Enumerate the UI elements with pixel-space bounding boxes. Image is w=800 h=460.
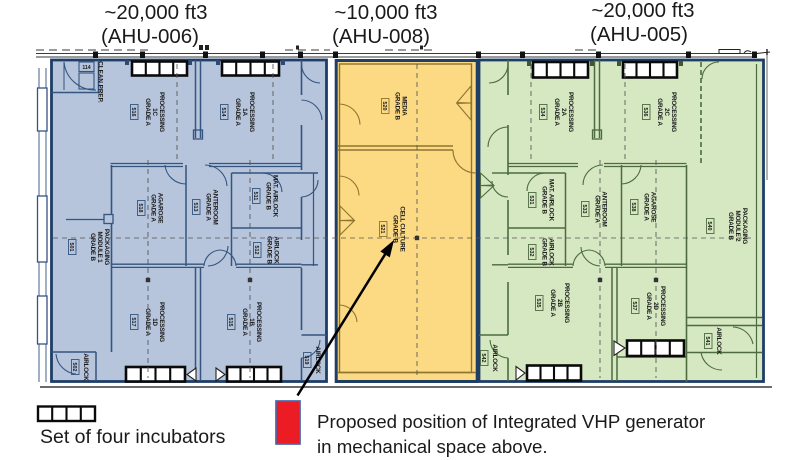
svg-text:535: 535 bbox=[535, 299, 541, 308]
svg-text:(AHU-006): (AHU-006) bbox=[101, 25, 199, 48]
svg-text:AIRLOCK: AIRLOCK bbox=[82, 353, 89, 381]
svg-text:514: 514 bbox=[220, 108, 226, 117]
svg-text:~20,000 ft3: ~20,000 ft3 bbox=[591, 0, 694, 22]
svg-text:PROCESSING: PROCESSING bbox=[659, 286, 666, 326]
svg-text:1A: 1A bbox=[241, 108, 248, 116]
svg-text:502: 502 bbox=[71, 363, 77, 372]
svg-text:AIRLOCK: AIRLOCK bbox=[491, 344, 498, 372]
svg-text:114: 114 bbox=[82, 65, 90, 71]
svg-text:(AHU-008): (AHU-008) bbox=[332, 25, 430, 48]
svg-text:516: 516 bbox=[130, 108, 136, 117]
svg-text:538: 538 bbox=[630, 203, 636, 212]
svg-text:512: 512 bbox=[253, 246, 259, 255]
svg-text:GRADE B: GRADE B bbox=[265, 182, 272, 210]
svg-text:PROCESSING: PROCESSING bbox=[248, 92, 255, 132]
svg-text:AGAROSE: AGAROSE bbox=[157, 193, 164, 223]
svg-text:AIRLOCK: AIRLOCK bbox=[273, 236, 280, 264]
svg-text:542: 542 bbox=[480, 354, 486, 363]
svg-text:2B: 2B bbox=[556, 299, 563, 307]
svg-text:AGAROSE: AGAROSE bbox=[650, 192, 657, 222]
svg-text:GRADE B: GRADE B bbox=[266, 236, 273, 264]
svg-text:AIRLOCK: AIRLOCK bbox=[548, 238, 555, 266]
svg-text:MAT. AIRLOCK: MAT. AIRLOCK bbox=[548, 179, 555, 222]
svg-text:GRADE A: GRADE A bbox=[643, 193, 650, 221]
svg-text:MODULE 1: MODULE 1 bbox=[96, 232, 103, 264]
svg-text:GRADE A: GRADE A bbox=[234, 98, 241, 126]
svg-text:GRADE A: GRADE A bbox=[549, 289, 556, 317]
svg-text:~10,000 ft3: ~10,000 ft3 bbox=[334, 1, 437, 24]
svg-text:GRADE B: GRADE B bbox=[541, 186, 548, 214]
svg-text:PACKAGING: PACKAGING bbox=[103, 229, 110, 266]
svg-text:ANTEROOM: ANTEROOM bbox=[601, 191, 608, 226]
svg-text:GRADE B: GRADE B bbox=[727, 212, 734, 240]
svg-text:ANTEROOM: ANTEROOM bbox=[212, 189, 219, 224]
svg-text:518: 518 bbox=[137, 204, 143, 213]
svg-text:2D: 2D bbox=[652, 302, 659, 310]
svg-text:MODULE 2: MODULE 2 bbox=[734, 211, 741, 243]
svg-text:532: 532 bbox=[528, 248, 534, 257]
svg-text:GRADE A: GRADE A bbox=[150, 194, 157, 222]
svg-text:(AHU-005): (AHU-005) bbox=[590, 23, 688, 46]
svg-text:GRADE A: GRADE A bbox=[645, 292, 652, 320]
svg-text:519: 519 bbox=[303, 356, 309, 365]
svg-text:PROCESSING: PROCESSING bbox=[255, 302, 262, 342]
svg-text:~20,000 ft3: ~20,000 ft3 bbox=[104, 1, 207, 24]
svg-text:GRADE B: GRADE B bbox=[89, 233, 96, 261]
svg-text:541: 541 bbox=[704, 337, 710, 346]
svg-text:1B: 1B bbox=[248, 318, 255, 326]
svg-text:537: 537 bbox=[631, 302, 637, 311]
svg-text:2A: 2A bbox=[560, 108, 567, 116]
svg-text:PACKAGING: PACKAGING bbox=[741, 208, 748, 245]
svg-text:PROCESSING: PROCESSING bbox=[567, 92, 574, 132]
svg-text:540: 540 bbox=[706, 222, 712, 231]
svg-text:PROCESSING: PROCESSING bbox=[158, 92, 165, 132]
svg-text:533: 533 bbox=[581, 205, 587, 214]
svg-text:GRADE A: GRADE A bbox=[241, 308, 248, 336]
svg-text:PROCESSING: PROCESSING bbox=[563, 283, 570, 323]
svg-text:GRADE A: GRADE A bbox=[553, 98, 560, 126]
svg-text:520: 520 bbox=[381, 102, 387, 111]
svg-text:GRADE B: GRADE B bbox=[541, 238, 548, 266]
svg-text:AIRLOCK: AIRLOCK bbox=[715, 327, 722, 355]
svg-text:GRADE A: GRADE A bbox=[656, 98, 663, 126]
svg-text:GRADE B: GRADE B bbox=[394, 92, 401, 120]
svg-text:MAT. AIRLOCK: MAT. AIRLOCK bbox=[272, 175, 279, 218]
svg-text:2C: 2C bbox=[663, 108, 670, 116]
svg-text:MEDIA: MEDIA bbox=[401, 96, 408, 116]
svg-text:PROCESSING: PROCESSING bbox=[158, 302, 165, 342]
svg-text:521: 521 bbox=[379, 225, 385, 234]
svg-text:501: 501 bbox=[68, 243, 74, 252]
svg-text:GRADE B: GRADE B bbox=[392, 215, 399, 243]
svg-text:536: 536 bbox=[642, 108, 648, 117]
svg-text:CELL CULTURE: CELL CULTURE bbox=[399, 206, 406, 251]
svg-text:Set of four incubators: Set of four incubators bbox=[40, 426, 226, 448]
svg-text:515: 515 bbox=[227, 318, 233, 327]
svg-text:531: 531 bbox=[528, 196, 534, 205]
svg-text:Proposed position of Integrate: Proposed position of Integrated VHP gene… bbox=[317, 411, 705, 432]
svg-text:PROCESSING: PROCESSING bbox=[670, 92, 677, 132]
svg-text:GRADE A: GRADE A bbox=[144, 98, 151, 126]
svg-text:511: 511 bbox=[252, 192, 258, 201]
svg-text:GRADE A: GRADE A bbox=[594, 195, 601, 223]
svg-text:in mechanical space above.: in mechanical space above. bbox=[317, 436, 548, 457]
svg-text:GRADE A: GRADE A bbox=[144, 308, 151, 336]
svg-text:534: 534 bbox=[539, 108, 545, 117]
svg-text:GRADE A: GRADE A bbox=[205, 193, 212, 221]
svg-text:1D: 1D bbox=[151, 318, 158, 326]
svg-text:513: 513 bbox=[192, 203, 198, 212]
svg-text:517: 517 bbox=[130, 318, 136, 327]
svg-text:1C: 1C bbox=[151, 108, 158, 116]
svg-text:CLEAN PREP.: CLEAN PREP. bbox=[97, 61, 104, 103]
